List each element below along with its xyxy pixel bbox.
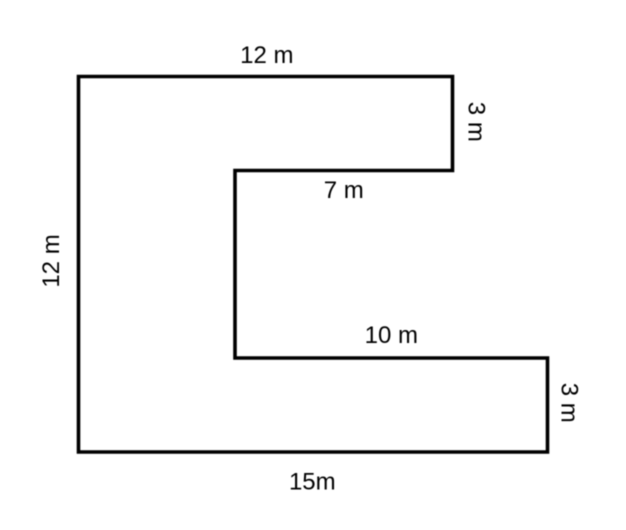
svg-text:3 m: 3 m (463, 102, 490, 142)
svg-text:15m: 15m (289, 469, 336, 496)
svg-text:3 m: 3 m (556, 383, 583, 423)
svg-text:12 m: 12 m (38, 234, 65, 287)
svg-text:12 m: 12 m (240, 42, 293, 69)
svg-text:7 m: 7 m (324, 177, 364, 204)
svg-text:10 m: 10 m (365, 322, 418, 349)
